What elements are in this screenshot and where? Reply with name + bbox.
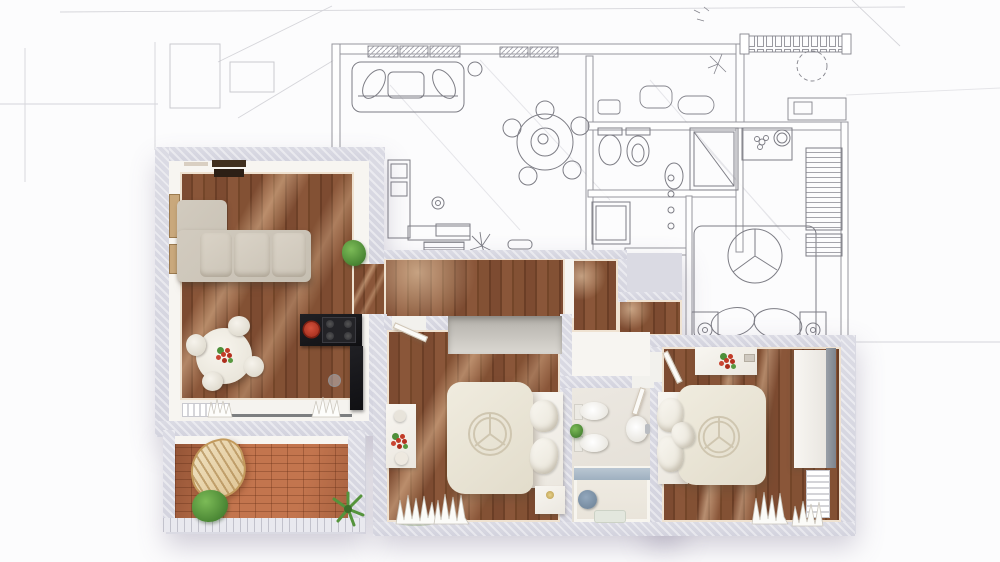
- render-layer: [0, 0, 1000, 562]
- wall: [618, 292, 682, 300]
- hall-wall-chunk: [566, 332, 650, 376]
- duvet-motif: [466, 410, 514, 458]
- basin-tap: [645, 424, 650, 434]
- bedroom-1-top-wall: [384, 316, 392, 330]
- sofa-cushion: [272, 233, 306, 277]
- dining-chair: [244, 356, 264, 377]
- wall: [369, 147, 384, 264]
- closet-niche: [448, 316, 562, 354]
- door-jamb: [565, 252, 574, 318]
- kitchen-counter-side: [350, 346, 363, 410]
- burner: [326, 332, 334, 340]
- bath-mat: [594, 510, 626, 523]
- hallway2-floor: [572, 259, 618, 332]
- sheer-curtain: [790, 496, 826, 528]
- bathtub-water-edge: [574, 468, 650, 480]
- flower-centerpiece: [221, 352, 226, 357]
- floor-plan-canvas: [0, 0, 1000, 562]
- burner: [344, 332, 352, 340]
- desk-stool: [394, 410, 406, 422]
- blue-stool: [578, 490, 597, 509]
- bedroom-1-top-wall: [426, 316, 450, 330]
- hallway2-extension-floor: [618, 300, 682, 336]
- sofa-cushion: [234, 233, 270, 277]
- desk-stool: [395, 452, 408, 465]
- duvet-motif: [696, 414, 742, 460]
- bidet: [580, 434, 608, 452]
- wardrobe: [794, 350, 826, 468]
- bedroom-2-right-wall: [841, 335, 855, 536]
- dining-chair: [228, 316, 250, 336]
- palm-plant: [330, 490, 366, 528]
- burner: [326, 320, 334, 328]
- living-opening-floor: [354, 264, 384, 314]
- terrace-wall: [163, 430, 175, 532]
- red-pan: [304, 322, 319, 337]
- desk-flowers: [724, 358, 729, 363]
- tv-sideboard: [212, 160, 246, 167]
- dining-chair: [186, 334, 206, 356]
- bedroom-2-door-gap: [650, 352, 662, 382]
- bedroom-1-left-wall: [373, 314, 387, 536]
- desk-flowers: [396, 438, 401, 443]
- hallway-top-wall: [384, 250, 627, 259]
- sill-plant: [310, 394, 342, 418]
- hallway-floor: [384, 258, 565, 318]
- sheer-curtain: [750, 486, 790, 526]
- wall: [155, 147, 169, 437]
- desk-item: [744, 354, 755, 362]
- sill-plant: [206, 396, 234, 418]
- burner: [344, 320, 352, 328]
- dining-chair: [202, 372, 223, 391]
- wall-shelf: [184, 162, 208, 166]
- wall: [155, 147, 385, 161]
- glass-item: [328, 374, 341, 387]
- tv-sideboard: [214, 169, 244, 177]
- nightstand-items: [546, 491, 554, 499]
- toilet: [580, 402, 608, 420]
- sheer-curtain: [432, 488, 472, 526]
- living-plant: [342, 240, 366, 266]
- wardrobe-side: [826, 348, 836, 468]
- sofa-cushion: [200, 233, 232, 277]
- bedroom-2-top-wall: [650, 335, 855, 347]
